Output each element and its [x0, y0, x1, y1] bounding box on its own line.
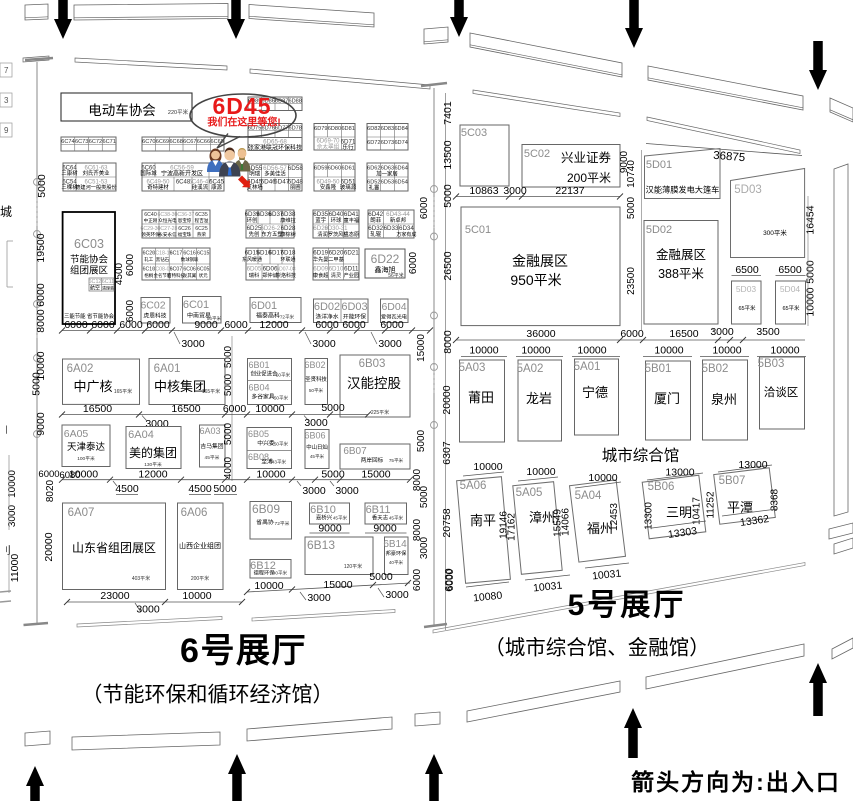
svg-text:6D09: 6D09	[313, 266, 328, 273]
svg-text:130平米: 130平米	[144, 461, 162, 468]
svg-text:吉马集团: 吉马集团	[200, 442, 223, 450]
svg-text:4500: 4500	[114, 262, 125, 285]
svg-text:6000: 6000	[445, 568, 456, 591]
svg-text:5A04: 5A04	[575, 490, 602, 502]
svg-text:童丰福: 童丰福	[344, 216, 360, 224]
svg-text:16500: 16500	[171, 403, 200, 415]
svg-text:3000: 3000	[385, 589, 409, 601]
svg-text:节能协会: 节能协会	[70, 254, 109, 266]
svg-text:5B06: 5B06	[648, 481, 675, 493]
svg-text:5000: 5000	[416, 429, 427, 452]
svg-text:16500: 16500	[669, 328, 698, 340]
svg-text:轧工: 轧工	[144, 256, 153, 263]
svg-text:6D04: 6D04	[381, 301, 406, 313]
svg-text:8000: 8000	[442, 330, 454, 354]
svg-text:6B10: 6B10	[310, 504, 336, 516]
svg-text:瑞科: 瑞科	[249, 271, 259, 279]
svg-text:4500: 4500	[115, 483, 139, 495]
svg-text:6000: 6000	[342, 319, 366, 331]
svg-text:刂: 刂	[1, 545, 11, 557]
svg-text:安鑫隆: 安鑫隆	[320, 183, 337, 191]
svg-text:10000: 10000	[712, 345, 741, 357]
svg-text:50平米: 50平米	[309, 387, 324, 394]
svg-text:宁德: 宁德	[582, 385, 608, 400]
svg-text:中兴委: 中兴委	[257, 439, 275, 447]
svg-text:13500: 13500	[442, 140, 454, 169]
svg-text:13000: 13000	[738, 459, 767, 471]
svg-text:3000: 3000	[710, 326, 734, 338]
svg-text:13000: 13000	[665, 467, 694, 479]
svg-text:10740: 10740	[626, 160, 637, 188]
svg-text:城市综合馆: 城市综合馆	[602, 447, 680, 465]
svg-text:10000: 10000	[69, 469, 98, 481]
svg-text:天津泰达: 天津泰达	[67, 441, 106, 453]
svg-text:10000: 10000	[526, 466, 555, 478]
svg-text:6C72: 6C72	[89, 139, 102, 145]
svg-text:8368: 8368	[770, 488, 781, 511]
svg-text:6000: 6000	[125, 253, 136, 276]
svg-text:华先曼: 华先曼	[313, 255, 329, 263]
svg-text:5D04: 5D04	[780, 284, 801, 294]
svg-text:8020: 8020	[45, 479, 56, 502]
svg-text:产业园: 产业园	[344, 271, 360, 279]
svg-text:300平米: 300平米	[763, 228, 787, 237]
svg-text:中核集团: 中核集团	[154, 379, 206, 394]
svg-text:6000: 6000	[35, 283, 47, 307]
svg-text:5号展厅: 5号展厅	[568, 589, 687, 622]
svg-text:3000: 3000	[503, 185, 527, 197]
svg-text:东风暖通: 东风暖通	[242, 256, 262, 263]
svg-text:3500: 3500	[756, 326, 780, 338]
svg-text:刘氏齐美业: 刘氏齐美业	[83, 169, 111, 177]
svg-text:电动车协会: 电动车协会	[88, 102, 156, 118]
svg-text:6000: 6000	[38, 469, 59, 480]
svg-text:6D28: 6D28	[281, 225, 296, 232]
svg-text:三明: 三明	[666, 505, 692, 520]
svg-text:6B01: 6B01	[248, 360, 269, 370]
svg-text:5C03: 5C03	[461, 127, 487, 139]
svg-text:香天志: 香天志	[372, 514, 389, 522]
svg-text:200平米: 200平米	[191, 575, 209, 582]
svg-text:6A06: 6A06	[181, 507, 208, 519]
svg-text:奇特建材: 奇特建材	[147, 183, 169, 191]
svg-text:5000: 5000	[442, 184, 454, 208]
svg-text:75平米: 75平米	[389, 457, 404, 464]
svg-text:45平米: 45平米	[333, 515, 348, 522]
svg-text:6D60: 6D60	[328, 166, 341, 172]
svg-text:10000: 10000	[254, 580, 283, 592]
svg-text:165平米: 165平米	[114, 388, 132, 395]
svg-text:5A03: 5A03	[459, 362, 486, 374]
svg-text:6B05: 6B05	[248, 429, 269, 439]
svg-text:6D81: 6D81	[341, 126, 354, 132]
svg-text:福宝珠: 福宝珠	[178, 231, 192, 238]
svg-text:燕荣: 燕荣	[197, 231, 207, 238]
svg-text:5C02: 5C02	[524, 148, 550, 160]
svg-text:3000: 3000	[335, 485, 359, 497]
svg-text:3: 3	[4, 96, 9, 105]
svg-text:6A05: 6A05	[64, 428, 89, 440]
svg-text:220平米: 220平米	[168, 108, 189, 116]
svg-text:6B14: 6B14	[383, 539, 407, 550]
svg-text:65平米: 65平米	[782, 304, 800, 312]
svg-text:45平米: 45平米	[310, 453, 325, 460]
svg-text:5000: 5000	[321, 469, 345, 481]
svg-text:388平米: 388平米	[658, 267, 704, 281]
svg-text:6D79: 6D79	[314, 126, 327, 132]
svg-text:6000: 6000	[419, 196, 430, 219]
svg-text:6D65-68: 6D65-68	[263, 139, 287, 146]
svg-text:6B07: 6B07	[343, 446, 367, 457]
svg-text:6C66: 6C66	[197, 139, 210, 145]
svg-text:10000: 10000	[588, 472, 617, 484]
svg-text:43平米: 43平米	[272, 459, 287, 466]
svg-text:硅溪流: 硅溪流	[192, 183, 209, 191]
svg-text:5A05: 5A05	[516, 487, 543, 499]
svg-text:程吉溢: 程吉溢	[195, 217, 209, 224]
svg-text:6000: 6000	[119, 319, 143, 331]
svg-text:南平: 南平	[470, 513, 496, 528]
svg-text:4000: 4000	[223, 456, 234, 479]
svg-text:20000: 20000	[441, 385, 453, 414]
svg-text:5B03: 5B03	[758, 358, 785, 370]
svg-text:6D01: 6D01	[251, 300, 277, 312]
svg-text:乐行: 乐行	[342, 143, 354, 151]
svg-text:5B02: 5B02	[702, 363, 729, 375]
svg-text:山东省组团展区: 山东省组团展区	[72, 541, 156, 555]
svg-text:生态原: 生态原	[344, 230, 360, 238]
svg-text:6C70: 6C70	[142, 139, 155, 145]
svg-text:5D02: 5D02	[646, 224, 672, 236]
svg-text:6D72: 6D72	[367, 140, 380, 146]
svg-text:轧辊: 轧辊	[370, 230, 381, 238]
svg-text:6C07: 6C07	[170, 267, 183, 273]
svg-text:7401: 7401	[442, 101, 454, 125]
svg-text:6C12: 6C12	[89, 279, 102, 285]
svg-text:4500: 4500	[188, 483, 212, 495]
svg-text:山西企业组团: 山西企业组团	[179, 541, 221, 550]
svg-text:225平米: 225平米	[371, 409, 389, 416]
svg-text:6000: 6000	[146, 319, 170, 331]
svg-text:万家有成: 万家有成	[396, 231, 416, 238]
svg-text:6D61: 6D61	[341, 166, 354, 172]
svg-text:17162: 17162	[507, 513, 518, 541]
svg-text:8000: 8000	[35, 309, 47, 333]
svg-text:10000: 10000	[577, 345, 606, 357]
svg-text:6D40: 6D40	[329, 211, 344, 218]
svg-text:3000: 3000	[181, 338, 205, 350]
svg-text:6D22: 6D22	[371, 252, 400, 266]
svg-text:50平米: 50平米	[276, 372, 291, 379]
svg-text:龙岩: 龙岩	[526, 391, 552, 406]
svg-text:6C15: 6C15	[197, 251, 210, 257]
svg-text:16500: 16500	[83, 403, 112, 415]
svg-text:20758: 20758	[441, 508, 453, 537]
svg-text:6A07: 6A07	[68, 507, 95, 519]
svg-text:莆田: 莆田	[468, 390, 494, 405]
svg-text:40平米: 40平米	[389, 559, 404, 566]
svg-text:先创: 先创	[249, 230, 260, 238]
svg-text:6D82: 6D82	[367, 126, 380, 132]
svg-text:6000: 6000	[64, 319, 88, 331]
svg-text:165平米: 165平米	[202, 388, 220, 395]
svg-text:永安永信: 永安永信	[158, 231, 177, 238]
svg-text:6C67: 6C67	[183, 139, 196, 145]
svg-text:65平米: 65平米	[738, 304, 756, 312]
svg-text:3000: 3000	[304, 417, 328, 429]
svg-text:领英环保: 领英环保	[141, 231, 160, 238]
svg-text:（节能环保和循环经济馆）: （节能环保和循环经济馆）	[82, 684, 334, 707]
svg-text:6C05: 6C05	[197, 267, 210, 273]
svg-text:5000: 5000	[213, 483, 237, 495]
svg-text:10000: 10000	[770, 345, 799, 357]
svg-text:5B01: 5B01	[645, 363, 672, 375]
svg-text:120平米: 120平米	[344, 563, 362, 570]
svg-text:5000: 5000	[321, 402, 345, 414]
svg-text:6B06: 6B06	[304, 431, 325, 441]
svg-text:洽谈区: 洽谈区	[764, 386, 799, 399]
svg-text:5C01: 5C01	[465, 224, 491, 236]
svg-text:我们在这里等您!: 我们在这里等您!	[207, 116, 280, 129]
svg-text:5A02: 5A02	[517, 363, 544, 375]
svg-text:汉能控股: 汉能控股	[347, 376, 401, 391]
svg-text:6B11: 6B11	[366, 504, 391, 516]
svg-text:10000: 10000	[654, 345, 683, 357]
svg-text:15000: 15000	[323, 579, 352, 591]
svg-text:6D42: 6D42	[368, 211, 383, 218]
svg-text:9000: 9000	[194, 319, 218, 331]
svg-text:兴业证券: 兴业证券	[561, 150, 612, 165]
svg-text:23500: 23500	[626, 267, 637, 295]
svg-text:23000: 23000	[100, 590, 129, 602]
svg-text:7: 7	[4, 66, 9, 75]
svg-text:新卓邦: 新卓邦	[390, 216, 407, 224]
svg-text:龙其翼: 龙其翼	[183, 272, 197, 279]
svg-text:200平米: 200平米	[567, 171, 611, 185]
svg-text:9000: 9000	[373, 523, 397, 535]
svg-text:6C74: 6C74	[61, 139, 74, 145]
svg-text:两岸回标: 两岸回标	[361, 456, 384, 464]
svg-text:多谷家具: 多谷家具	[251, 393, 274, 401]
svg-text:中广核: 中广核	[73, 379, 112, 394]
svg-text:6D02: 6D02	[314, 301, 340, 313]
svg-text:14066: 14066	[561, 508, 572, 536]
svg-text:5000: 5000	[626, 196, 637, 219]
svg-text:6D58: 6D58	[288, 165, 304, 172]
svg-text:6B03: 6B03	[359, 358, 386, 370]
svg-text:箭头方向为:出入口: 箭头方向为:出入口	[631, 769, 841, 795]
svg-text:6D59: 6D59	[314, 166, 327, 172]
svg-text:状元: 状元	[199, 272, 208, 279]
svg-text:6C06: 6C06	[183, 267, 196, 273]
svg-text:9000: 9000	[35, 412, 47, 436]
svg-text:15000: 15000	[416, 334, 427, 362]
svg-text:12000: 12000	[138, 469, 167, 481]
svg-text:6D84: 6D84	[394, 126, 407, 132]
svg-text:5000: 5000	[36, 174, 48, 198]
svg-text:康食超: 康食超	[313, 271, 329, 279]
svg-text:张家港联冠环保科技: 张家港联冠环保科技	[248, 144, 302, 152]
svg-text:清理装: 清理装	[102, 285, 114, 291]
svg-text:5D01: 5D01	[646, 159, 672, 171]
svg-text:10000: 10000	[256, 469, 285, 481]
svg-text:城: 城	[0, 205, 12, 219]
svg-text:6D07-08: 6D07-08	[276, 267, 295, 273]
svg-text:6D74: 6D74	[394, 140, 407, 146]
svg-text:6500: 6500	[735, 264, 759, 276]
svg-text:10000: 10000	[473, 461, 502, 473]
svg-text:丽圃: 丽圃	[290, 184, 301, 191]
svg-text:邦豪环保: 邦豪环保	[386, 549, 408, 557]
svg-text:20000: 20000	[43, 532, 55, 561]
svg-text:恩宝惊: 恩宝惊	[178, 217, 192, 224]
svg-text:国际城: 国际城	[140, 169, 157, 177]
svg-text:6C03: 6C03	[74, 237, 104, 251]
svg-text:清灵: 清灵	[331, 271, 341, 279]
svg-text:泉州: 泉州	[711, 392, 737, 407]
svg-text:梧桐: 梧桐	[144, 272, 153, 279]
svg-text:众恒光电: 众恒光电	[158, 217, 177, 224]
svg-text:丨: 丨	[2, 425, 11, 435]
svg-text:6D18: 6D18	[281, 250, 296, 257]
svg-text:50平米: 50平米	[274, 395, 289, 402]
svg-text:100平米: 100平米	[77, 455, 95, 462]
svg-text:5000: 5000	[223, 422, 234, 445]
svg-text:6D73: 6D73	[381, 140, 394, 146]
svg-text:汉能薄膜发电大篷车: 汉能薄膜发电大篷车	[646, 185, 720, 195]
svg-text:6C68: 6C68	[169, 139, 182, 145]
svg-text:10000: 10000	[255, 403, 284, 415]
svg-text:6C01: 6C01	[183, 299, 209, 311]
svg-text:6D83: 6D83	[381, 126, 394, 132]
svg-text:6C17: 6C17	[170, 251, 183, 257]
svg-text:朗菲: 朗菲	[370, 216, 381, 224]
svg-text:10000: 10000	[521, 345, 550, 357]
svg-text:环球: 环球	[331, 216, 342, 224]
svg-text:6000: 6000	[315, 319, 339, 331]
svg-text:6D34: 6D34	[399, 225, 414, 232]
svg-text:6D20: 6D20	[329, 250, 344, 257]
svg-text:6000: 6000	[408, 251, 419, 274]
svg-text:航空: 航空	[90, 285, 100, 292]
svg-text:12453: 12453	[609, 503, 620, 531]
svg-text:三康树: 三康树	[61, 169, 78, 177]
svg-text:950平米: 950平米	[510, 272, 561, 288]
svg-text:6号展厅: 6号展厅	[180, 632, 307, 670]
svg-text:6D80: 6D80	[328, 126, 341, 132]
svg-text:明瑞: 明瑞	[249, 170, 260, 178]
svg-text:5000: 5000	[419, 485, 430, 508]
svg-text:6C56-59: 6C56-59	[170, 165, 194, 172]
svg-text:环联通: 环联通	[280, 256, 295, 263]
svg-text:6D53: 6D53	[381, 180, 394, 186]
svg-text:6D78: 6D78	[289, 125, 302, 131]
svg-text:美的集团: 美的集团	[129, 445, 177, 460]
svg-text:6C73: 6C73	[75, 139, 88, 145]
svg-text:6A02: 6A02	[67, 363, 94, 375]
svg-text:6C69: 6C69	[156, 139, 169, 145]
svg-text:45平米: 45平米	[389, 515, 404, 522]
svg-text:6000: 6000	[223, 403, 247, 415]
svg-text:26500: 26500	[442, 251, 454, 280]
svg-text:3000: 3000	[302, 485, 326, 497]
svg-text:6000: 6000	[224, 319, 248, 331]
svg-text:5B07: 5B07	[719, 475, 746, 487]
svg-text:36000: 36000	[526, 328, 555, 340]
svg-text:圣贤科技: 圣贤科技	[305, 375, 327, 383]
svg-text:6000: 6000	[412, 568, 423, 591]
svg-text:加一家居: 加一家居	[376, 170, 398, 178]
svg-text:6D43-44: 6D43-44	[386, 211, 410, 218]
svg-text:创业促进会: 创业促进会	[251, 370, 279, 378]
svg-text:康源: 康源	[211, 183, 222, 191]
svg-text:10000: 10000	[182, 590, 211, 602]
svg-text:6C02: 6C02	[140, 300, 165, 312]
svg-text:德建河一般类股份: 德建河一般类股份	[75, 183, 117, 191]
svg-text:15000: 15000	[361, 469, 390, 481]
svg-text:6500: 6500	[778, 264, 802, 276]
svg-text:黑钻石: 黑钻石	[156, 256, 170, 263]
svg-text:3000: 3000	[312, 338, 336, 350]
svg-text:厦门: 厦门	[654, 391, 680, 406]
svg-text:10417: 10417	[692, 497, 703, 525]
svg-text:6D54: 6D54	[394, 180, 407, 186]
svg-text:45平米: 45平米	[205, 454, 220, 461]
svg-text:嘉桥兴: 嘉桥兴	[316, 514, 333, 522]
svg-text:礼霻: 礼霻	[369, 184, 380, 192]
svg-text:佘太翠组: 佘太翠组	[317, 142, 340, 150]
svg-text:6307: 6307	[441, 441, 453, 465]
svg-text:403平米: 403平米	[132, 575, 150, 582]
svg-text:6D35: 6D35	[313, 211, 328, 218]
svg-text:6B13: 6B13	[307, 538, 335, 552]
svg-text:（城市综合馆、金融馆）: （城市综合馆、金融馆）	[484, 637, 710, 660]
svg-text:6D41: 6D41	[344, 211, 359, 218]
svg-text:6000: 6000	[620, 328, 644, 340]
svg-text:玻璃源: 玻璃源	[340, 183, 357, 191]
svg-text:宁波高新开发区: 宁波高新开发区	[161, 170, 203, 178]
svg-text:5A01: 5A01	[574, 361, 601, 373]
svg-text:5000: 5000	[805, 260, 817, 284]
svg-text:11252: 11252	[706, 491, 717, 519]
svg-text:6B09: 6B09	[252, 502, 280, 516]
svg-text:50平米: 50平米	[274, 441, 289, 448]
svg-text:3000: 3000	[136, 604, 160, 616]
svg-text:6A01: 6A01	[154, 363, 181, 375]
svg-text:56平米: 56平米	[388, 272, 404, 279]
svg-text:多美佳活: 多美佳活	[264, 170, 286, 178]
svg-text:6D21: 6D21	[344, 250, 359, 257]
svg-text:6A04: 6A04	[128, 429, 154, 441]
svg-text:9000: 9000	[318, 523, 342, 535]
svg-text:6C71: 6C71	[102, 139, 115, 145]
svg-text:3000: 3000	[307, 592, 331, 604]
svg-text:6000: 6000	[91, 319, 115, 331]
svg-text:5D03: 5D03	[736, 284, 757, 294]
svg-text:康棕树: 康棕树	[280, 230, 296, 238]
svg-text:组团展区: 组团展区	[70, 265, 109, 277]
svg-text:40平米: 40平米	[273, 570, 288, 577]
svg-text:6D33: 6D33	[384, 225, 399, 232]
svg-text:36875: 36875	[713, 150, 746, 164]
svg-text:6D88: 6D88	[289, 99, 302, 105]
svg-text:5A06: 5A06	[460, 480, 487, 492]
svg-text:3000: 3000	[419, 536, 430, 559]
svg-text:6C11: 6C11	[102, 279, 115, 285]
svg-text:6D03: 6D03	[341, 301, 367, 313]
svg-text:3000: 3000	[378, 338, 402, 350]
svg-text:19500: 19500	[35, 233, 47, 262]
